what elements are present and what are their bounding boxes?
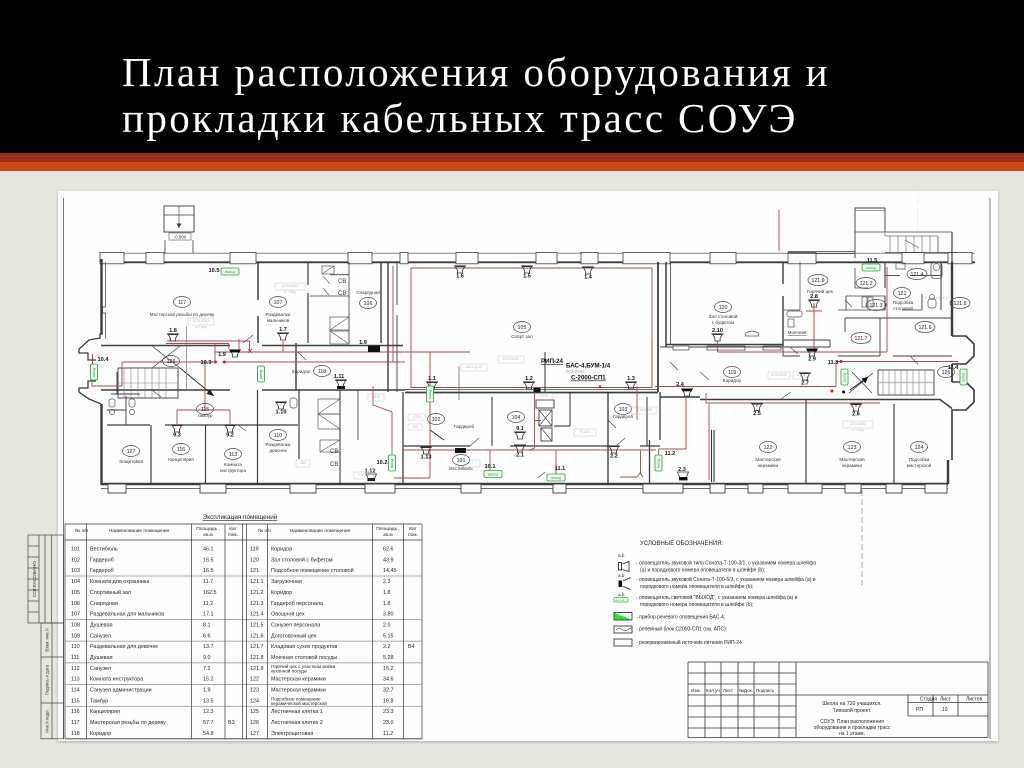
svg-text:СУ-05: СУ-05 <box>359 473 369 477</box>
svg-text:46.1: 46.1 <box>203 547 214 553</box>
svg-text:103: 103 <box>71 568 80 574</box>
svg-text:2.3: 2.3 <box>678 467 686 473</box>
svg-text:1.11: 1.11 <box>334 374 345 380</box>
svg-text:СПЗ-0292: СПЗ-0292 <box>850 422 867 426</box>
svg-text:порядкового номера оповещател: порядкового номера оповещателя в шлейфе … <box>640 601 753 608</box>
svg-text:Моечная: Моечная <box>788 330 807 335</box>
svg-text:5.28: 5.28 <box>383 655 394 661</box>
svg-text:34.6: 34.6 <box>383 677 394 683</box>
svg-text:1.9: 1.9 <box>359 340 367 346</box>
svg-text:Лист: Лист <box>940 697 952 703</box>
svg-text:Мастерскаякерамики: Мастерскаякерамики <box>839 457 865 468</box>
svg-text:СПЗ-0292: СПЗ-0292 <box>503 357 520 361</box>
svg-text:выход: выход <box>551 476 561 480</box>
svg-text:1.6: 1.6 <box>456 274 464 280</box>
svg-text:111: 111 <box>71 655 79 661</box>
svg-text:114: 114 <box>71 688 80 694</box>
svg-text:122: 122 <box>250 677 259 683</box>
svg-text:10.4: 10.4 <box>98 357 110 363</box>
svg-text:11.2: 11.2 <box>665 451 676 457</box>
svg-text:Санузел администрации: Санузел администрации <box>90 688 152 694</box>
svg-text:120: 120 <box>250 557 259 563</box>
svg-text:Коридор: Коридор <box>292 369 311 374</box>
svg-text:121.4: 121.4 <box>911 272 924 278</box>
svg-text:В4: В4 <box>408 644 415 650</box>
svg-text:121: 121 <box>250 568 259 574</box>
svg-text:Листов: Листов <box>966 697 983 703</box>
svg-text:5.15: 5.15 <box>383 633 394 639</box>
svg-text:С-2000-СП1: С-2000-СП1 <box>571 375 606 382</box>
svg-text:127: 127 <box>250 731 259 737</box>
svg-text:122: 122 <box>764 445 773 451</box>
svg-text:порядкового номера оповещател: порядкового номера оповещателя в шлейфе … <box>640 583 753 590</box>
svg-text:и 7 мгд: и 7 мгд <box>852 428 863 432</box>
svg-text:116: 116 <box>177 447 185 453</box>
svg-text:П-42Ч: П-42Ч <box>580 430 591 434</box>
svg-text:103: 103 <box>619 407 628 413</box>
svg-text:121.7: 121.7 <box>250 644 264 650</box>
svg-text:124: 124 <box>915 445 924 451</box>
svg-text:a.b: a.b <box>618 573 625 578</box>
svg-text:Инв.N подл.: Инв.N подл. <box>45 709 50 732</box>
svg-text:1.10: 1.10 <box>276 410 287 416</box>
svg-text:110: 110 <box>71 644 80 650</box>
svg-text:Элщитовая: Элщитовая <box>119 459 144 464</box>
svg-text:Гардероб: Гардероб <box>90 557 114 563</box>
svg-text:Лист: Лист <box>723 688 734 693</box>
svg-text:Мастерскаякерамики: Мастерскаякерамики <box>755 457 781 468</box>
svg-text:Изм.: Изм. <box>691 688 701 693</box>
svg-text:121.3: 121.3 <box>250 601 264 607</box>
svg-text:Кладовая сухих продуктов: Кладовая сухих продуктов <box>271 644 337 650</box>
svg-text:121.9: 121.9 <box>250 666 264 672</box>
svg-text:2.1: 2.1 <box>516 453 524 459</box>
svg-text:СВ: СВ <box>338 279 346 285</box>
svg-text:Комната инструктора: Комната инструктора <box>90 677 143 683</box>
svg-text:Коридор: Коридор <box>723 378 742 383</box>
svg-text:116: 116 <box>71 709 80 715</box>
svg-text:126: 126 <box>942 370 951 376</box>
svg-text:Коридор: Коридор <box>90 731 111 737</box>
svg-text:В3: В3 <box>228 720 235 726</box>
svg-text:10: 10 <box>942 707 948 713</box>
svg-text:Загрузочная: Загрузочная <box>271 579 302 585</box>
svg-text:113: 113 <box>71 677 80 683</box>
svg-text:СВ: СВ <box>338 291 346 297</box>
svg-text:121.5: 121.5 <box>954 301 967 307</box>
svg-text:121.5: 121.5 <box>250 623 264 629</box>
svg-text:РП: РП <box>916 707 923 713</box>
svg-text:Стадия: Стадия <box>920 697 937 703</box>
svg-text:-0.000: -0.000 <box>174 234 187 239</box>
svg-text:104: 104 <box>71 579 80 585</box>
svg-text:115: 115 <box>71 698 80 704</box>
svg-text:13.5: 13.5 <box>203 698 214 704</box>
svg-text:124: 124 <box>250 698 259 704</box>
svg-text:Гардероб: Гардероб <box>454 424 475 429</box>
svg-text:тамбур: тамбур <box>197 413 212 418</box>
svg-text:11.3: 11.3 <box>828 360 839 366</box>
svg-text:118: 118 <box>71 731 80 737</box>
svg-text:9.1: 9.1 <box>516 426 524 432</box>
svg-text:Комната для охранника: Комната для охранника <box>90 579 149 585</box>
svg-text:Мастерская керамики: Мастерская керамики <box>271 688 326 694</box>
svg-text:11.7: 11.7 <box>203 579 213 585</box>
svg-text:1.1: 1.1 <box>428 376 436 382</box>
svg-text:15.2: 15.2 <box>203 677 214 683</box>
svg-text:1.13: 1.13 <box>421 455 432 461</box>
svg-text:- резервированный источник пит: - резервированный источник питания РИП-2… <box>636 639 743 646</box>
svg-text:121: 121 <box>898 291 907 297</box>
svg-text:Зал столовой с буфетом: Зал столовой с буфетом <box>271 556 333 563</box>
svg-text:пом.: пом. <box>408 533 418 538</box>
svg-text:10.5: 10.5 <box>209 268 220 274</box>
svg-text:Раздевальная для девочек: Раздевальная для девочек <box>90 644 158 650</box>
svg-text:Кол.уч: Кол.уч <box>706 688 720 693</box>
svg-text:- релейный блок С2000-СП1 (см.: - релейный блок С2000-СП1 (см. АПС); <box>636 626 727 633</box>
svg-text:12.3: 12.3 <box>203 709 214 715</box>
svg-text:Экспликация помещений: Экспликация помещений <box>203 513 278 521</box>
svg-text:Раздевалкамальчиков: Раздевалкамальчиков <box>266 312 291 323</box>
svg-text:1.9: 1.9 <box>218 352 226 358</box>
svg-text:№Док.: №Док. <box>739 688 753 693</box>
svg-text:17.1: 17.1 <box>203 612 214 618</box>
svg-text:1.4: 1.4 <box>584 275 593 281</box>
svg-text:Лестничная клетка 2: Лестничная клетка 2 <box>271 720 323 726</box>
svg-text:Наименование помещения: Наименование помещения <box>290 528 351 534</box>
svg-text:1.2: 1.2 <box>525 376 533 382</box>
svg-text:ЗЧ72: ЗЧ72 <box>372 395 380 399</box>
svg-text:и 7 мгд: и 7 мгд <box>195 325 206 329</box>
svg-text:54.8: 54.8 <box>203 731 214 737</box>
svg-text:Взам. инв.N: Взам. инв.N <box>45 628 50 651</box>
svg-text:105: 105 <box>518 325 527 331</box>
svg-text:125: 125 <box>250 709 259 715</box>
svg-text:1.7: 1.7 <box>279 327 287 333</box>
svg-text:23.3: 23.3 <box>383 709 394 715</box>
svg-text:15.2: 15.2 <box>383 666 394 672</box>
svg-text:117: 117 <box>178 300 186 306</box>
svg-text:выход: выход <box>92 368 96 377</box>
svg-text:Типовой проект.: Типовой проект. <box>833 707 872 714</box>
svg-text:Санузел персонала: Санузел персонала <box>271 623 320 629</box>
svg-text:2.0: 2.0 <box>383 623 391 629</box>
svg-text:СПЗ-0292: СПЗ-0292 <box>636 408 653 412</box>
svg-text:Площадь ,: Площадь , <box>376 526 400 532</box>
svg-text:10.2: 10.2 <box>377 460 388 466</box>
svg-text:2.8: 2.8 <box>810 294 818 300</box>
svg-text:10.1: 10.1 <box>485 464 496 470</box>
svg-text:Наименование помещения: Наименование помещения <box>109 528 170 534</box>
svg-text:105: 105 <box>71 590 80 596</box>
svg-text:106: 106 <box>71 601 80 607</box>
svg-text:СПЗ: СПЗ <box>413 415 420 419</box>
svg-text:110: 110 <box>274 433 282 439</box>
svg-text:121.3: 121.3 <box>870 303 883 309</box>
svg-text:108: 108 <box>71 623 80 629</box>
svg-text:выход: выход <box>259 370 263 379</box>
svg-text:Раздевалкадевочек: Раздевалкадевочек <box>266 442 291 453</box>
svg-text:106: 106 <box>364 301 373 307</box>
svg-text:- оповещатель звуковой Соната-: - оповещатель звуковой Соната-Т-100-5/3,… <box>636 576 816 583</box>
svg-text:Овощной цех: Овощной цех <box>271 611 305 618</box>
svg-text:вы ход: вы ход <box>616 598 625 602</box>
svg-text:121.8: 121.8 <box>250 655 264 661</box>
svg-text:127: 127 <box>127 449 136 455</box>
svg-text:Канцелярия: Канцелярия <box>90 709 120 715</box>
svg-text:Доготовочный цех: Доготовочный цех <box>271 632 317 639</box>
svg-text:9.2: 9.2 <box>226 433 234 439</box>
svg-text:2.7: 2.7 <box>801 381 809 387</box>
svg-text:1.3: 1.3 <box>627 376 635 382</box>
svg-text:Горячий цех: Горячий цех <box>807 288 834 294</box>
svg-text:Раздевальная для мальчиков: Раздевальная для мальчиков <box>90 612 164 618</box>
svg-text:выход: выход <box>225 270 235 274</box>
svg-text:Гардероб: Гардероб <box>90 568 114 574</box>
svg-text:252: 252 <box>300 461 306 465</box>
svg-text:101: 101 <box>71 547 80 553</box>
svg-text:a.b: a.b <box>618 553 625 558</box>
svg-text:выход: выход <box>657 459 661 468</box>
svg-text:- оповещатель звуковой типа Со: - оповещатель звуковой типа Соната-Т-100… <box>636 560 816 567</box>
svg-text:104: 104 <box>512 415 521 421</box>
svg-text:Снарядная: Снарядная <box>356 290 380 295</box>
svg-text:Подпись и дата: Подпись и дата <box>45 664 50 695</box>
svg-text:№ п/п: № п/п <box>258 528 271 534</box>
svg-text:на 1 этаже.: на 1 этаже. <box>839 731 865 737</box>
svg-text:123: 123 <box>848 445 857 451</box>
svg-text:и 7 м: и 7 м <box>797 373 806 377</box>
svg-text:Подсобкастоловой: Подсобкастоловой <box>893 300 914 311</box>
svg-text:Гардероб персонала: Гардероб персонала <box>271 601 323 607</box>
svg-text:43.9: 43.9 <box>383 557 394 563</box>
svg-text:пом.: пом. <box>228 533 238 538</box>
svg-text:кухонной посуды: кухонной посуды <box>271 668 307 674</box>
svg-text:Кат: Кат <box>409 526 417 532</box>
svg-text:и 7 мгд: и 7 мгд <box>284 290 295 294</box>
svg-text:Моечная столовой посуды: Моечная столовой посуды <box>271 654 337 661</box>
svg-text:107: 107 <box>274 300 283 306</box>
svg-text:Тамбур: Тамбур <box>90 698 108 704</box>
svg-text:3.80: 3.80 <box>383 612 394 618</box>
svg-text:121.1: 121.1 <box>250 579 264 585</box>
svg-text:Мастерская резьбы по дереву: Мастерская резьбы по дереву <box>90 720 166 726</box>
svg-text:Мастерская резьбы по дереву: Мастерская резьбы по дереву <box>150 312 215 317</box>
svg-text:2.4: 2.4 <box>676 382 685 388</box>
svg-text:выход: выход <box>390 459 394 468</box>
svg-text:(а) и порядкового номера опов: (а) и порядкового номера оповещателя в ш… <box>640 567 765 574</box>
svg-text:Санузел: Санузел <box>90 633 111 639</box>
svg-text:11.2: 11.2 <box>203 601 213 607</box>
svg-text:1.5: 1.5 <box>523 274 531 280</box>
svg-text:121.6: 121.6 <box>250 633 264 639</box>
svg-text:120: 120 <box>719 305 728 311</box>
svg-text:1.8: 1.8 <box>383 601 391 607</box>
svg-text:32.7: 32.7 <box>383 688 394 694</box>
svg-text:СПЗ-0292: СПЗ-0292 <box>193 319 210 323</box>
svg-text:Душевая: Душевая <box>90 623 113 629</box>
svg-text:Спорт зал: Спорт зал <box>511 334 533 339</box>
svg-text:Вестибюль: Вестибюль <box>90 547 118 553</box>
svg-text:252: 252 <box>412 425 418 429</box>
svg-text:Снарядная: Снарядная <box>90 601 118 607</box>
svg-text:Лестничная клетка 1: Лестничная клетка 1 <box>271 709 323 715</box>
svg-text:Спортивный зал: Спортивный зал <box>90 589 131 596</box>
svg-text:СОГЛАСОВАНО: СОГЛАСОВАНО <box>32 561 38 597</box>
svg-text:118: 118 <box>318 369 326 375</box>
svg-text:11.5: 11.5 <box>867 258 878 264</box>
svg-text:выход: выход <box>843 373 847 382</box>
svg-text:СУ-7: СУ-7 <box>465 461 473 465</box>
svg-text:119: 119 <box>250 547 259 553</box>
svg-text:УСЛОВНЫЕ ОБОЗНАЧЕНИЯ:: УСЛОВНЫЕ ОБОЗНАЧЕНИЯ: <box>640 541 724 547</box>
svg-text:СПЗ-0292: СПЗ-0292 <box>771 373 788 377</box>
svg-text:121.9: 121.9 <box>812 278 825 284</box>
svg-text:Электрощитовая: Электрощитовая <box>271 731 313 737</box>
svg-text:112: 112 <box>71 666 80 672</box>
svg-text:57.7: 57.7 <box>203 720 214 726</box>
svg-text:2.2: 2.2 <box>610 454 618 460</box>
svg-text:107: 107 <box>71 612 80 618</box>
svg-text:8.1: 8.1 <box>203 623 211 629</box>
svg-text:СВ: СВ <box>330 449 338 455</box>
svg-text:кв.м: кв.м <box>383 533 392 538</box>
svg-text:119: 119 <box>728 370 736 376</box>
svg-text:СВ: СВ <box>330 462 338 468</box>
svg-text:126: 126 <box>250 720 259 726</box>
svg-text:162.5: 162.5 <box>203 590 217 596</box>
svg-text:выход: выход <box>962 373 966 382</box>
svg-text:1.8: 1.8 <box>383 590 391 596</box>
svg-text:Подсобное помещение столовой: Подсобное помещение столовой <box>271 567 354 574</box>
svg-text:Школа на 720 учащихся.: Школа на 720 учащихся. <box>822 701 881 707</box>
svg-text:10.3: 10.3 <box>201 360 212 366</box>
svg-text:121.2: 121.2 <box>860 281 873 287</box>
svg-text:16.5: 16.5 <box>203 568 214 574</box>
svg-text:6.6: 6.6 <box>203 633 211 639</box>
svg-text:СПУ: СПУ <box>540 394 548 398</box>
svg-text:62.6: 62.6 <box>383 547 394 553</box>
svg-text:109: 109 <box>71 633 80 639</box>
svg-text:16.8: 16.8 <box>383 698 394 704</box>
svg-text:Санузел: Санузел <box>90 666 111 672</box>
svg-text:13.7: 13.7 <box>203 644 214 650</box>
svg-text:2.6: 2.6 <box>852 412 860 418</box>
svg-text:Гардероб: Гардероб <box>613 414 634 419</box>
svg-text:СПЗ-0292: СПЗ-0292 <box>282 284 299 288</box>
svg-text:9.3: 9.3 <box>173 433 181 439</box>
svg-text:РИП-24: РИП-24 <box>541 358 564 365</box>
svg-text:Коридор: Коридор <box>271 547 292 553</box>
svg-text:11.1: 11.1 <box>555 466 566 472</box>
svg-text:1.8: 1.8 <box>169 328 177 334</box>
svg-text:117: 117 <box>71 720 80 726</box>
svg-text:1.9: 1.9 <box>203 688 211 694</box>
svg-text:выход: выход <box>488 473 498 477</box>
svg-text:Канцелярия: Канцелярия <box>168 457 194 462</box>
svg-text:2.2: 2.2 <box>383 644 391 650</box>
svg-text:2.10: 2.10 <box>712 328 723 334</box>
svg-text:керамической мастерской: керамической мастерской <box>271 700 327 706</box>
svg-text:Кат: Кат <box>229 526 237 532</box>
svg-text:Мастерская керамики: Мастерская керамики <box>271 677 326 683</box>
svg-text:- прибор речевого оповещения Б: - прибор речевого оповещения БАС-4; <box>636 615 725 621</box>
svg-text:121.6: 121.6 <box>919 325 932 331</box>
svg-text:102: 102 <box>432 417 441 423</box>
svg-text:9.0: 9.0 <box>203 655 211 661</box>
svg-text:a.b: a.b <box>618 592 625 597</box>
svg-text:113: 113 <box>229 452 237 458</box>
svg-text:кв.м: кв.м <box>203 533 212 538</box>
svg-text:выход: выход <box>866 266 876 270</box>
svg-text:ШСЗ-Д-12: ШСЗ-Д-12 <box>466 365 483 369</box>
svg-text:Комнатаинструктора: Комнатаинструктора <box>220 462 247 473</box>
svg-text:выход: выход <box>428 390 432 399</box>
svg-text:125: 125 <box>167 359 176 365</box>
svg-text:Подсобкамастерской: Подсобкамастерской <box>907 457 932 468</box>
svg-text:121.4: 121.4 <box>250 612 264 618</box>
svg-text:Площадь ,: Площадь , <box>196 526 220 532</box>
svg-text:2.9: 2.9 <box>808 357 816 363</box>
svg-text:123: 123 <box>250 688 259 694</box>
svg-text:Коридор: Коридор <box>271 590 292 596</box>
svg-text:102: 102 <box>71 557 80 563</box>
svg-text:23.0: 23.0 <box>383 720 394 726</box>
svg-text:Подпись: Подпись <box>756 688 775 693</box>
svg-text:- оповещатель световой "ВЫХОД": - оповещатель световой "ВЫХОД", с указан… <box>636 594 798 601</box>
svg-text:7.2: 7.2 <box>203 666 211 672</box>
svg-text:2.3: 2.3 <box>383 579 391 585</box>
svg-text:11.2: 11.2 <box>383 731 393 737</box>
svg-text:16.5: 16.5 <box>203 557 214 563</box>
svg-text:Душевая: Душевая <box>90 655 113 661</box>
svg-text:Зал столовойс буфетом: Зал столовойс буфетом <box>709 313 738 325</box>
svg-text:115: 115 <box>201 407 209 413</box>
svg-text:121.7: 121.7 <box>855 336 868 342</box>
svg-text:072-0292: 072-0292 <box>566 369 585 374</box>
svg-text:121.2: 121.2 <box>250 590 264 596</box>
svg-text:14.45: 14.45 <box>383 568 397 574</box>
svg-text:2.5: 2.5 <box>753 411 761 417</box>
